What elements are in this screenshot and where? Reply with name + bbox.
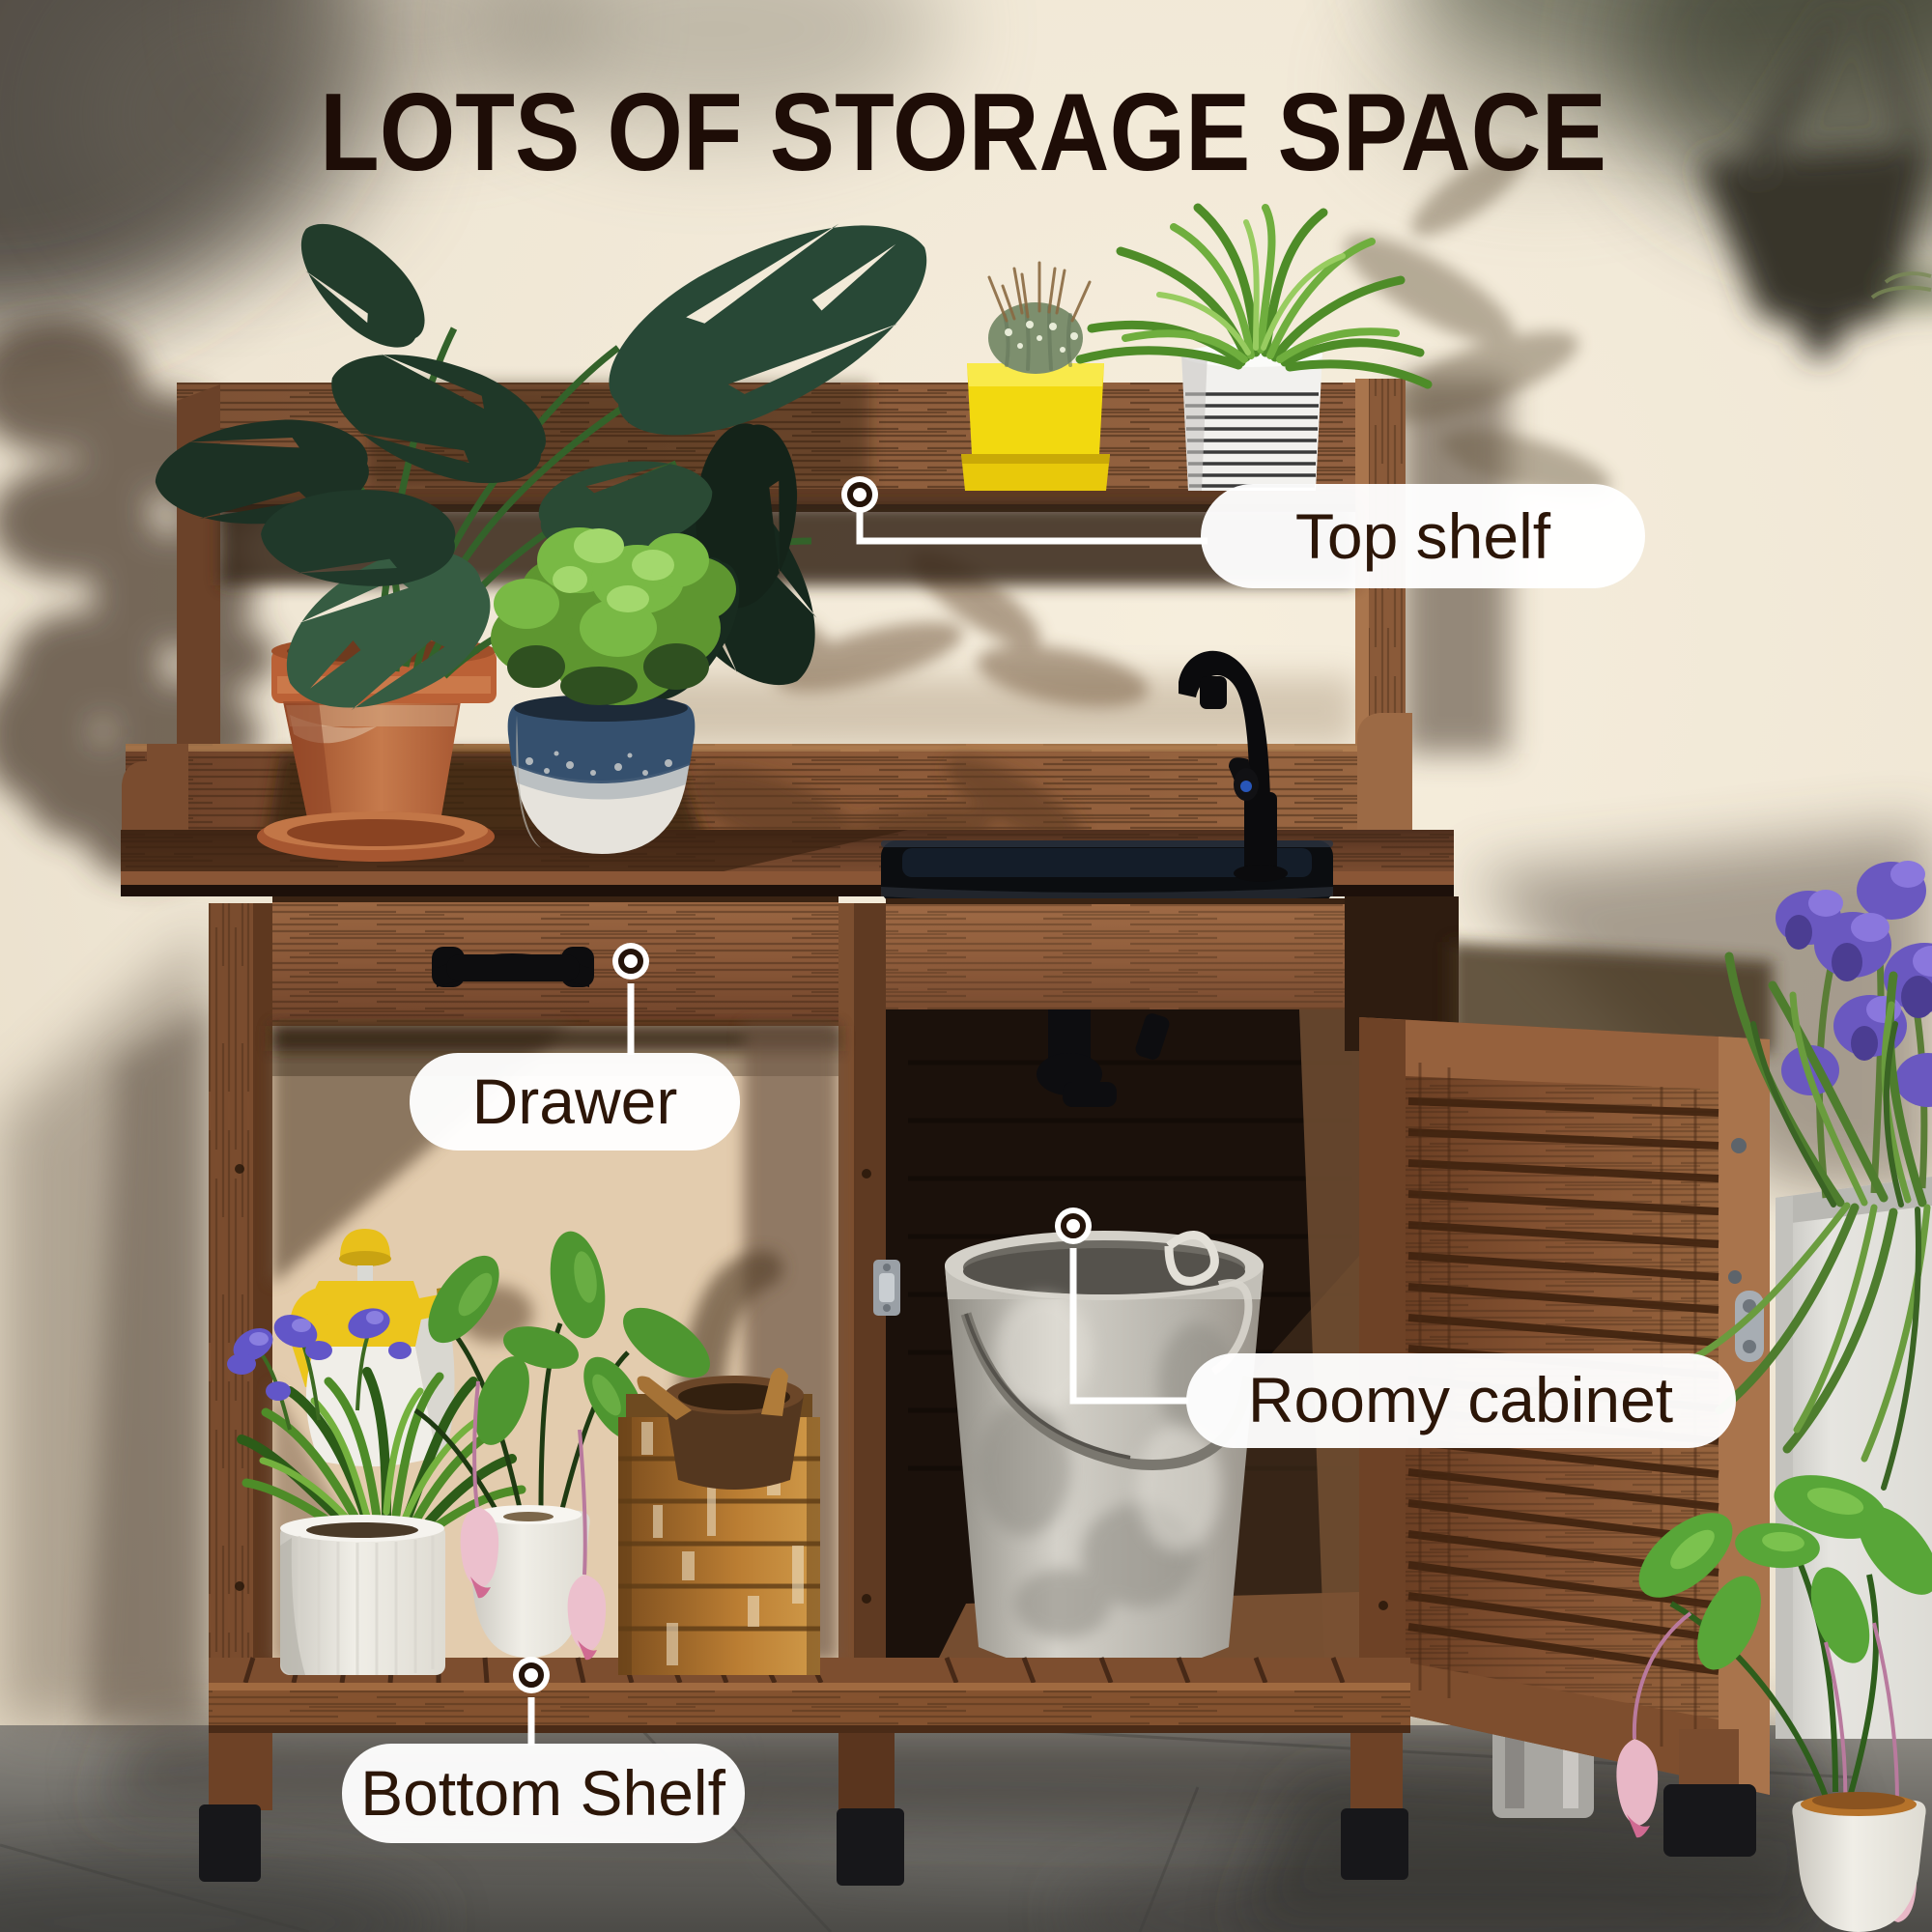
svg-text:Roomy cabinet: Roomy cabinet bbox=[1248, 1364, 1673, 1435]
svg-text:Drawer: Drawer bbox=[472, 1065, 678, 1137]
svg-text:LOTS OF STORAGE SPACE: LOTS OF STORAGE SPACE bbox=[320, 71, 1606, 194]
svg-text:Top shelf: Top shelf bbox=[1295, 500, 1551, 572]
svg-text:Bottom Shelf: Bottom Shelf bbox=[360, 1757, 726, 1829]
